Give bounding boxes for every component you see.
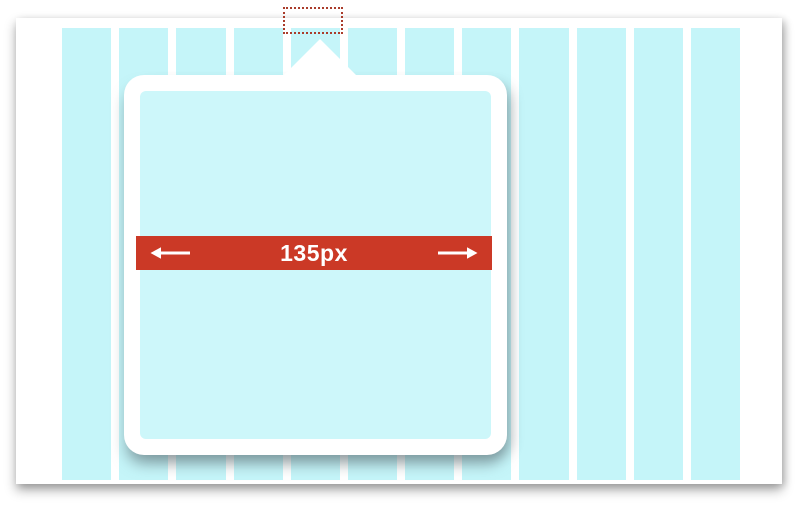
grid-column [577,28,626,480]
arrow-left-icon [149,246,191,260]
measurement-label: 135px [191,236,437,270]
grid-column [62,28,111,480]
arrow-right-icon [437,246,479,260]
grid-column [691,28,740,480]
popover-arrow-icon [282,39,358,77]
popover: 135px [124,75,507,455]
grid-column [519,28,568,480]
illustration-canvas: 135px [0,0,800,510]
anchor-element-outline [283,7,343,34]
width-measurement-band: 135px [136,236,492,270]
grid-column [634,28,683,480]
